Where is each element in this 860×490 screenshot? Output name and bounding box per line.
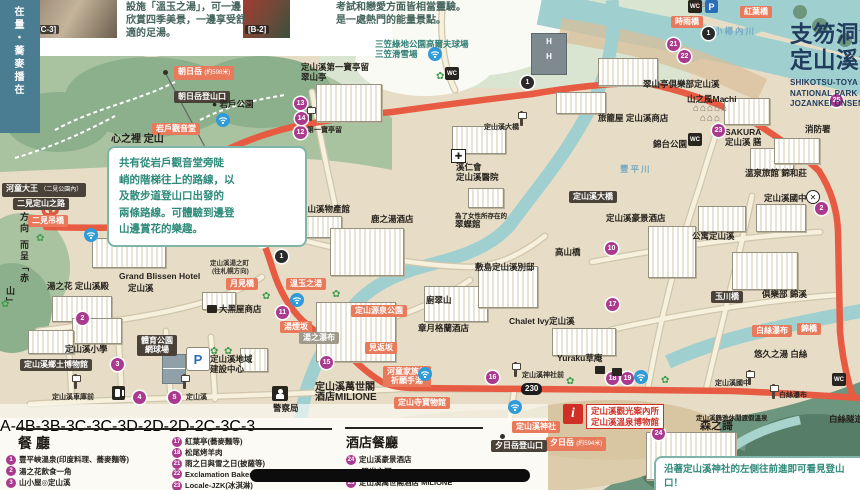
legend-item-restaurant: 21雨之日與雪之日(披薩等) (172, 458, 265, 469)
title-line2: 定山溪溫泉 (790, 48, 860, 74)
note-power-spot: 考試和戀愛方面皆相當靈驗。是一處熱門的能量景點。 (336, 1, 476, 27)
legend-label: 山小屋◎定山溪 (19, 477, 71, 488)
tourist-info-box: i 定山溪觀光案內所定山溪溫泉博物館 (563, 404, 664, 429)
photo-footbath: [C-3] (33, 0, 117, 38)
building (648, 226, 696, 278)
text-line: 及散步道登山口出發的 (119, 188, 295, 205)
building (478, 266, 538, 308)
legend-item-restaurant: 18松尾烤羊肉 (172, 447, 223, 458)
legend-grid-ref: D-2 (126, 418, 152, 435)
building (316, 84, 382, 122)
legend-marker: 23 (172, 481, 182, 490)
rugby-field: HH (531, 33, 567, 75)
tennis-court (162, 354, 186, 384)
legend-label: Locale-JZK(冰淇淋) (185, 480, 253, 490)
building (468, 188, 504, 208)
legend-marker: 18 (172, 448, 182, 458)
legend-grid-ref: C-3 (229, 418, 255, 435)
text-line: 峭的階梯往上的路線，以 (119, 172, 295, 189)
legend-marker: 2 (6, 466, 16, 476)
building (598, 58, 658, 86)
legend-rule (16, 428, 332, 430)
legend-item-restaurant: 2湯之花飲食一角 (6, 466, 72, 477)
building (240, 348, 268, 372)
text-line: 欣賞四季美景，一邊享受舒 (126, 14, 246, 27)
building (724, 98, 770, 125)
sidebar-fragment: 山」 (4, 286, 17, 308)
legend-marker: 22 (172, 469, 182, 479)
building (732, 252, 798, 290)
legend-label: 雨之日與雪之日(披薩等) (185, 458, 265, 469)
photo-grid-tag: [B-2] (245, 25, 269, 34)
legend-grid-ref: D-2 (152, 418, 178, 435)
text-line: 是一處熱門的能量景點。 (336, 14, 476, 27)
building (556, 92, 606, 114)
sidebar-strip: 在量・蕎麥播在 (0, 0, 40, 133)
building (774, 138, 820, 164)
legend-label: 松尾烤羊肉 (185, 447, 223, 458)
legend-item-restaurant: 23Locale-JZK(冰淇淋) (172, 480, 253, 490)
legend-item-restaurant: 22Exclamation Bakery (172, 469, 256, 479)
text-line: 沿著定山溪神社的左側往前進即可看見登山口！ (664, 463, 860, 490)
building (72, 318, 122, 344)
legend-grid-ref: C-3 (101, 418, 127, 435)
text-line: 山邊賞花的樂趣。 (119, 221, 295, 238)
text-line: SHIKOTSU-TOYA (790, 78, 860, 89)
text-line: JOZANKEI ONSEN (790, 99, 860, 110)
text-line: 設施「溫玉之湯」，可一邊 (126, 1, 246, 14)
legend-marker: 21 (172, 459, 182, 469)
building (28, 330, 74, 354)
text-line: 兩條路線。可體驗到邊登 (119, 205, 295, 222)
legend-label: Exclamation Bakery (185, 470, 256, 479)
photo-shrine: [B-2] (243, 0, 290, 38)
building (202, 292, 236, 310)
legend-grid-ref: D-2 (178, 418, 204, 435)
building (330, 228, 404, 276)
info-icon: i (563, 404, 583, 424)
legend-rule (345, 427, 483, 429)
info-text: 定山溪觀光案內所定山溪溫泉博物館 (586, 404, 664, 429)
legend-heading-restaurants: 餐 廳 (18, 433, 50, 453)
legend-item-restaurant: 17紅葉亭(蕎麥麵等) (172, 436, 243, 447)
sidebar-fragment: 方向 (18, 212, 31, 234)
sidebar-fragment: 而呈「赤 (18, 240, 31, 284)
legend-label: 豐平峽溫泉(印度料理、蕎麥麵等) (19, 454, 129, 465)
black-bar-overlay (250, 469, 530, 482)
building (698, 206, 746, 232)
building (316, 302, 396, 362)
callout-yuhidake: 沿著定山溪神社的左側往前進即可看見登山口！登向山頂的途中可以一邊尋找山野草，一邊… (654, 456, 860, 490)
map-title: 支笏洞爺國立公園 定山溪溫泉 SHIKOTSU-TOYANATIONAL PAR… (790, 22, 860, 110)
jozankei-tourist-map: [C-3] [B-2] 設施「溫玉之湯」，可一邊欣賞四季美景，一邊享受舒適的足湯… (0, 0, 860, 490)
legend-marker: 17 (172, 437, 182, 447)
legend-label: 紅葉亭(蕎麥麵等) (185, 436, 243, 447)
legend-grid-ref: C-3 (75, 418, 101, 435)
legend-marker: 24 (346, 455, 356, 465)
title-english: SHIKOTSU-TOYANATIONAL PARKJOZANKEI ONSEN (790, 78, 860, 110)
note-footbath: 設施「溫玉之湯」，可一邊欣賞四季美景，一邊享受舒適的足湯。 (126, 1, 246, 40)
title-line1: 支笏洞爺國立公園 (790, 22, 860, 48)
callout-asahidake: 共有從岩戶觀音堂旁陡峭的階梯往上的路線，以及散步道登山口出發的兩條路線。可體驗到… (107, 146, 307, 247)
legend-marker: 3 (6, 478, 16, 488)
legend-grid-ref: B-3 (50, 418, 75, 435)
text-line: 考試和戀愛方面皆相當靈驗。 (336, 1, 476, 14)
building (756, 204, 806, 232)
legend-label: 湯之花飲食一角 (19, 466, 72, 477)
text-line: 適的足湯。 (126, 27, 246, 40)
building (452, 126, 506, 154)
text-line: 共有從岩戶觀音堂旁陡 (119, 155, 295, 172)
sidebar-vertical-text: 在量・蕎麥播在 (10, 6, 25, 97)
legend-heading-hotel-restaurants: 酒店餐廳 (346, 432, 398, 451)
legend-grid-ref: C-3 (204, 418, 230, 435)
legend-item-hotel-restaurant: 24定山溪豪景酒店 (346, 454, 412, 465)
text-line: NATIONAL PARK (790, 89, 860, 100)
legend-marker: 1 (6, 455, 16, 465)
legend-label: 定山溪豪景酒店 (359, 454, 412, 465)
legend-item-restaurant: 3山小屋◎定山溪 (6, 477, 71, 488)
legend-item-restaurant: 1豐平峽溫泉(印度料理、蕎麥麵等) (6, 454, 129, 465)
building (552, 328, 616, 356)
